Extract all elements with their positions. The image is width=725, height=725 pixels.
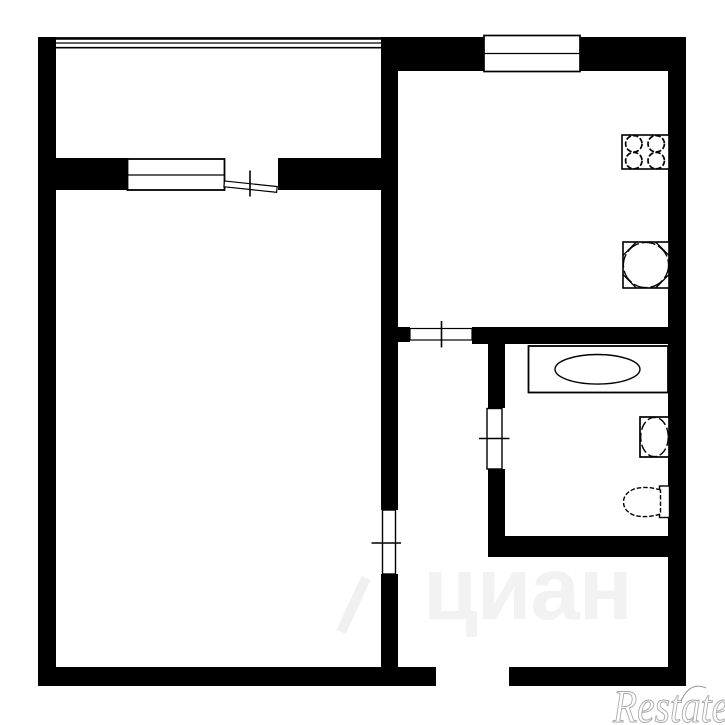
svg-text:Restate: Restate: [612, 681, 725, 725]
